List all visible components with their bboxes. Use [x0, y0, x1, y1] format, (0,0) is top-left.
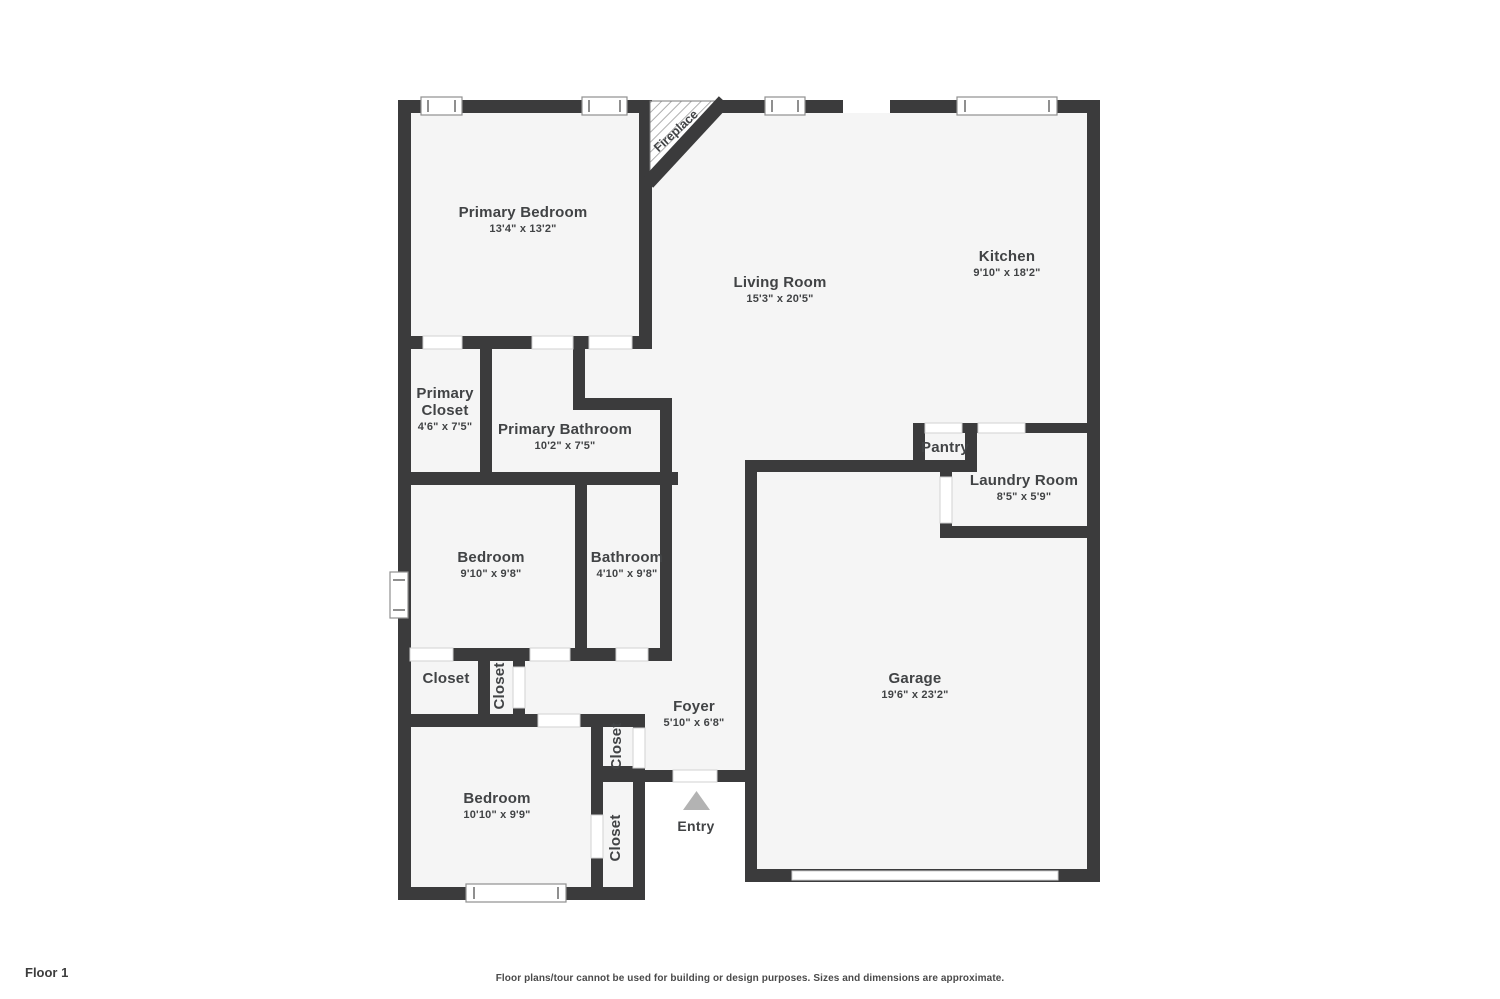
room-label: Closet	[491, 662, 509, 709]
room-dims: 9'10" x 18'2"	[973, 267, 1040, 280]
room-dims: 5'10" x 6'8"	[664, 717, 725, 730]
room-dims: 4'10" x 9'8"	[591, 568, 663, 581]
room-name: Kitchen	[973, 248, 1040, 266]
disclaimer-text: Floor plans/tour cannot be used for buil…	[496, 973, 1005, 984]
room-label: Closet	[608, 722, 626, 769]
room-dims: 13'4" x 13'2"	[459, 223, 588, 236]
room-name: Closet	[422, 670, 469, 688]
room-name: Bedroom	[457, 549, 524, 567]
room-dims: 15'3" x 20'5"	[733, 293, 826, 306]
room-name: Primary Bedroom	[459, 204, 588, 222]
room-label: Garage19'6" x 23'2"	[881, 670, 948, 702]
room-name: Primary Closet	[403, 385, 487, 420]
room-label: Primary Closet4'6" x 7'5"	[403, 385, 487, 433]
room-dims: 4'6" x 7'5"	[403, 420, 487, 433]
room-labels-layer: Primary Bedroom13'4" x 13'2"Living Room1…	[0, 0, 1500, 999]
room-label: Closet	[607, 814, 625, 861]
room-label: Closet	[422, 670, 469, 688]
floor-label: Floor 1	[25, 965, 68, 980]
room-dims: 10'2" x 7'5"	[498, 440, 632, 453]
entry-label: Entry	[677, 818, 714, 834]
room-label: Pantry	[921, 439, 969, 457]
room-dims: 9'10" x 9'8"	[457, 568, 524, 581]
floorplan-canvas: Primary Bedroom13'4" x 13'2"Living Room1…	[0, 0, 1500, 999]
room-label: Kitchen9'10" x 18'2"	[973, 248, 1040, 280]
room-dims: 19'6" x 23'2"	[881, 689, 948, 702]
room-name: Bedroom	[463, 790, 530, 808]
room-label: Foyer5'10" x 6'8"	[664, 698, 725, 730]
room-name: Foyer	[664, 698, 725, 716]
room-name: Garage	[881, 670, 948, 688]
room-label: Living Room15'3" x 20'5"	[733, 274, 826, 306]
room-label: Primary Bedroom13'4" x 13'2"	[459, 204, 588, 236]
room-name: Laundry Room	[970, 472, 1078, 490]
room-label: Bedroom9'10" x 9'8"	[457, 549, 524, 581]
room-label: Laundry Room8'5" x 5'9"	[970, 472, 1078, 504]
room-label: Primary Bathroom10'2" x 7'5"	[498, 421, 632, 453]
room-dims: 8'5" x 5'9"	[970, 491, 1078, 504]
room-name: Bathroom	[591, 549, 663, 567]
room-name: Pantry	[921, 439, 969, 457]
room-label: Bedroom10'10" x 9'9"	[463, 790, 530, 822]
room-name: Closet	[608, 722, 626, 769]
room-name: Closet	[491, 662, 509, 709]
room-name: Primary Bathroom	[498, 421, 632, 439]
room-dims: 10'10" x 9'9"	[463, 809, 530, 822]
room-name: Living Room	[733, 274, 826, 292]
room-name: Closet	[607, 814, 625, 861]
room-label: Bathroom4'10" x 9'8"	[591, 549, 663, 581]
